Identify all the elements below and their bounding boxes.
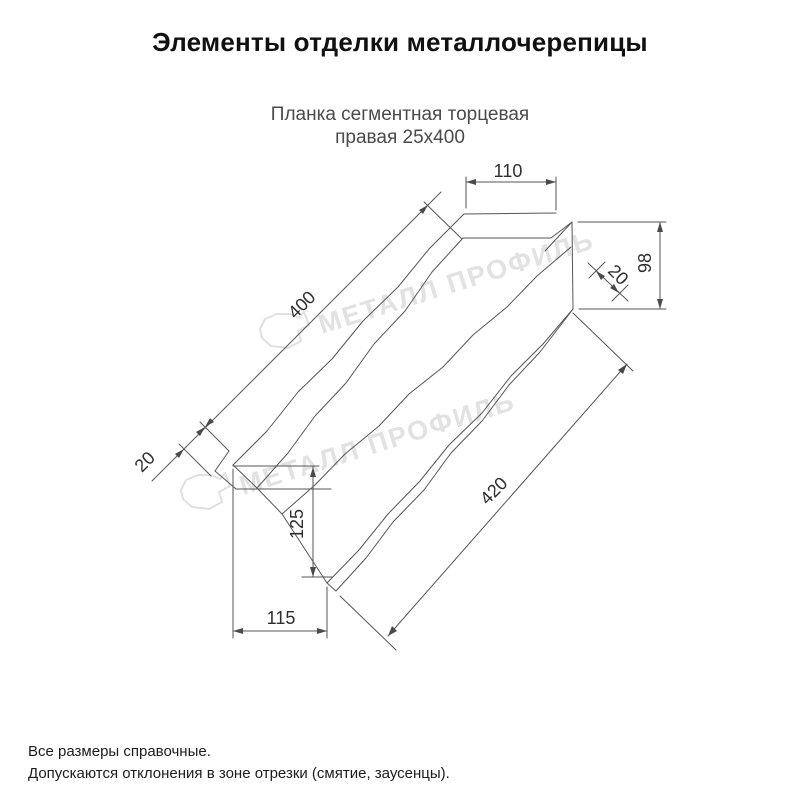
page: Элементы отделки металлочерепицы Планка … — [0, 0, 800, 800]
dim-420: 420 — [340, 313, 633, 650]
footer-note-2: Допускаются отклонения в зоне отрезки (с… — [28, 763, 450, 785]
dim-400-label: 400 — [284, 287, 319, 322]
technical-drawing: МЕТАЛЛ ПРОФИЛЬ МЕТАЛЛ ПРОФИЛЬ — [0, 0, 800, 800]
left-hem-edge — [215, 451, 229, 471]
dim-110: 110 — [466, 161, 556, 210]
dim-20-right: 20 — [588, 261, 632, 301]
footer-note-1: Все размеры справочные. — [28, 741, 450, 763]
metal-profil-logo-icon — [181, 473, 230, 509]
dim-20-left-label: 20 — [131, 448, 159, 476]
dim-115-label: 115 — [267, 608, 296, 628]
watermark-text: МЕТАЛЛ ПРОФИЛЬ — [236, 386, 519, 501]
dim-110-label: 110 — [494, 161, 523, 181]
watermark-2: МЕТАЛЛ ПРОФИЛЬ — [181, 386, 519, 509]
dim-420-label: 420 — [476, 473, 511, 508]
dim-125-label: 125 — [287, 509, 307, 539]
dim-98-label: 98 — [635, 253, 655, 273]
watermark-1: МЕТАЛЛ ПРОФИЛЬ — [260, 225, 598, 348]
dim-20-left: 20 — [131, 422, 229, 476]
footer-notes: Все размеры справочные. Допускаются откл… — [28, 741, 450, 784]
watermark-text: МЕТАЛЛ ПРОФИЛЬ — [315, 225, 598, 340]
